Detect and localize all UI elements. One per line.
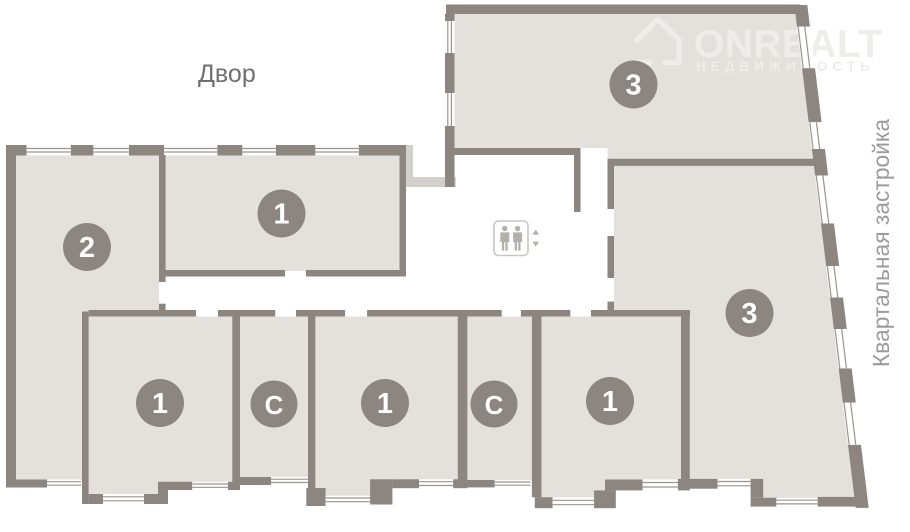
svg-text:Двор: Двор: [198, 60, 256, 88]
svg-text:3: 3: [741, 298, 757, 330]
svg-text:Квартальная застройка: Квартальная застройка: [868, 119, 894, 368]
svg-text:С: С: [265, 390, 284, 420]
svg-text:НЕДВИЖИМОСТЬ: НЕДВИЖИМОСТЬ: [696, 59, 875, 74]
svg-text:3: 3: [625, 70, 641, 102]
svg-text:2: 2: [79, 232, 95, 264]
svg-text:1: 1: [377, 388, 393, 420]
svg-text:С: С: [485, 390, 504, 420]
svg-text:1: 1: [273, 199, 289, 231]
svg-text:1: 1: [152, 388, 168, 420]
svg-text:1: 1: [602, 386, 618, 418]
